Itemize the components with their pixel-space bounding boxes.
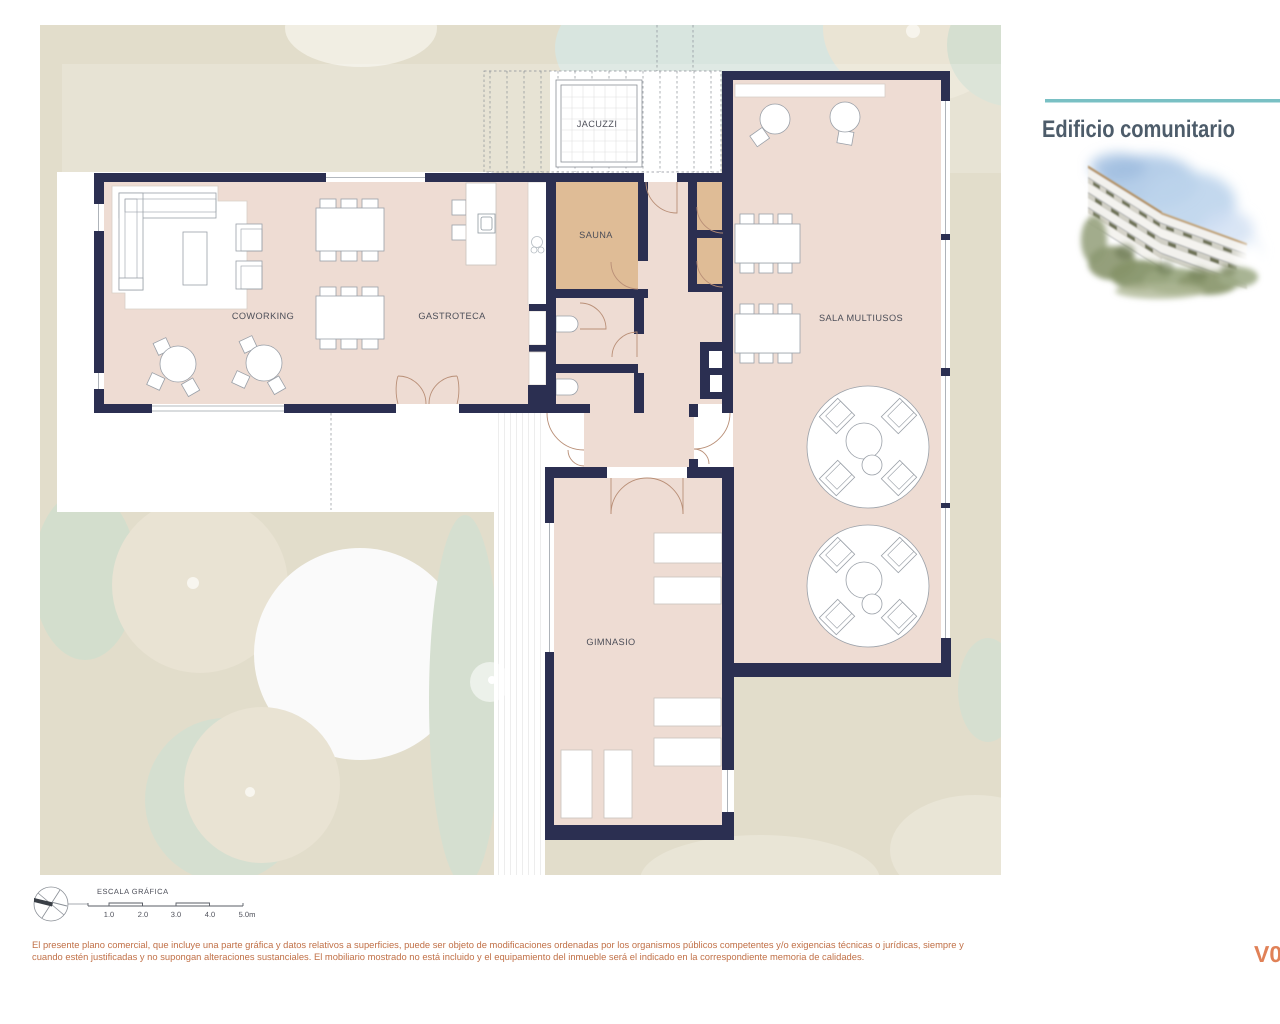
svg-text:SALA MULTIUSOS: SALA MULTIUSOS: [819, 313, 903, 323]
svg-text:V01: V01: [1254, 941, 1280, 967]
svg-text:2.0: 2.0: [138, 910, 148, 919]
svg-text:GIMNASIO: GIMNASIO: [586, 637, 635, 647]
svg-text:SAUNA: SAUNA: [579, 230, 613, 240]
svg-text:GASTROTECA: GASTROTECA: [418, 311, 486, 321]
svg-text:ESCALA GRÁFICA: ESCALA GRÁFICA: [97, 887, 169, 896]
svg-text:1.0: 1.0: [104, 910, 114, 919]
svg-text:COWORKING: COWORKING: [232, 311, 294, 321]
svg-text:Edificio comunitario: Edificio comunitario: [1042, 116, 1235, 143]
svg-text:JACUZZI: JACUZZI: [577, 119, 618, 129]
svg-text:3.0: 3.0: [171, 910, 181, 919]
svg-text:El presente plano comercial, q: El presente plano comercial, que incluye…: [32, 939, 964, 950]
svg-text:4.0: 4.0: [205, 910, 215, 919]
svg-text:cuando estén justificadas y no: cuando estén justificadas y no supongan …: [32, 951, 864, 962]
svg-text:5.0m: 5.0m: [239, 910, 256, 919]
